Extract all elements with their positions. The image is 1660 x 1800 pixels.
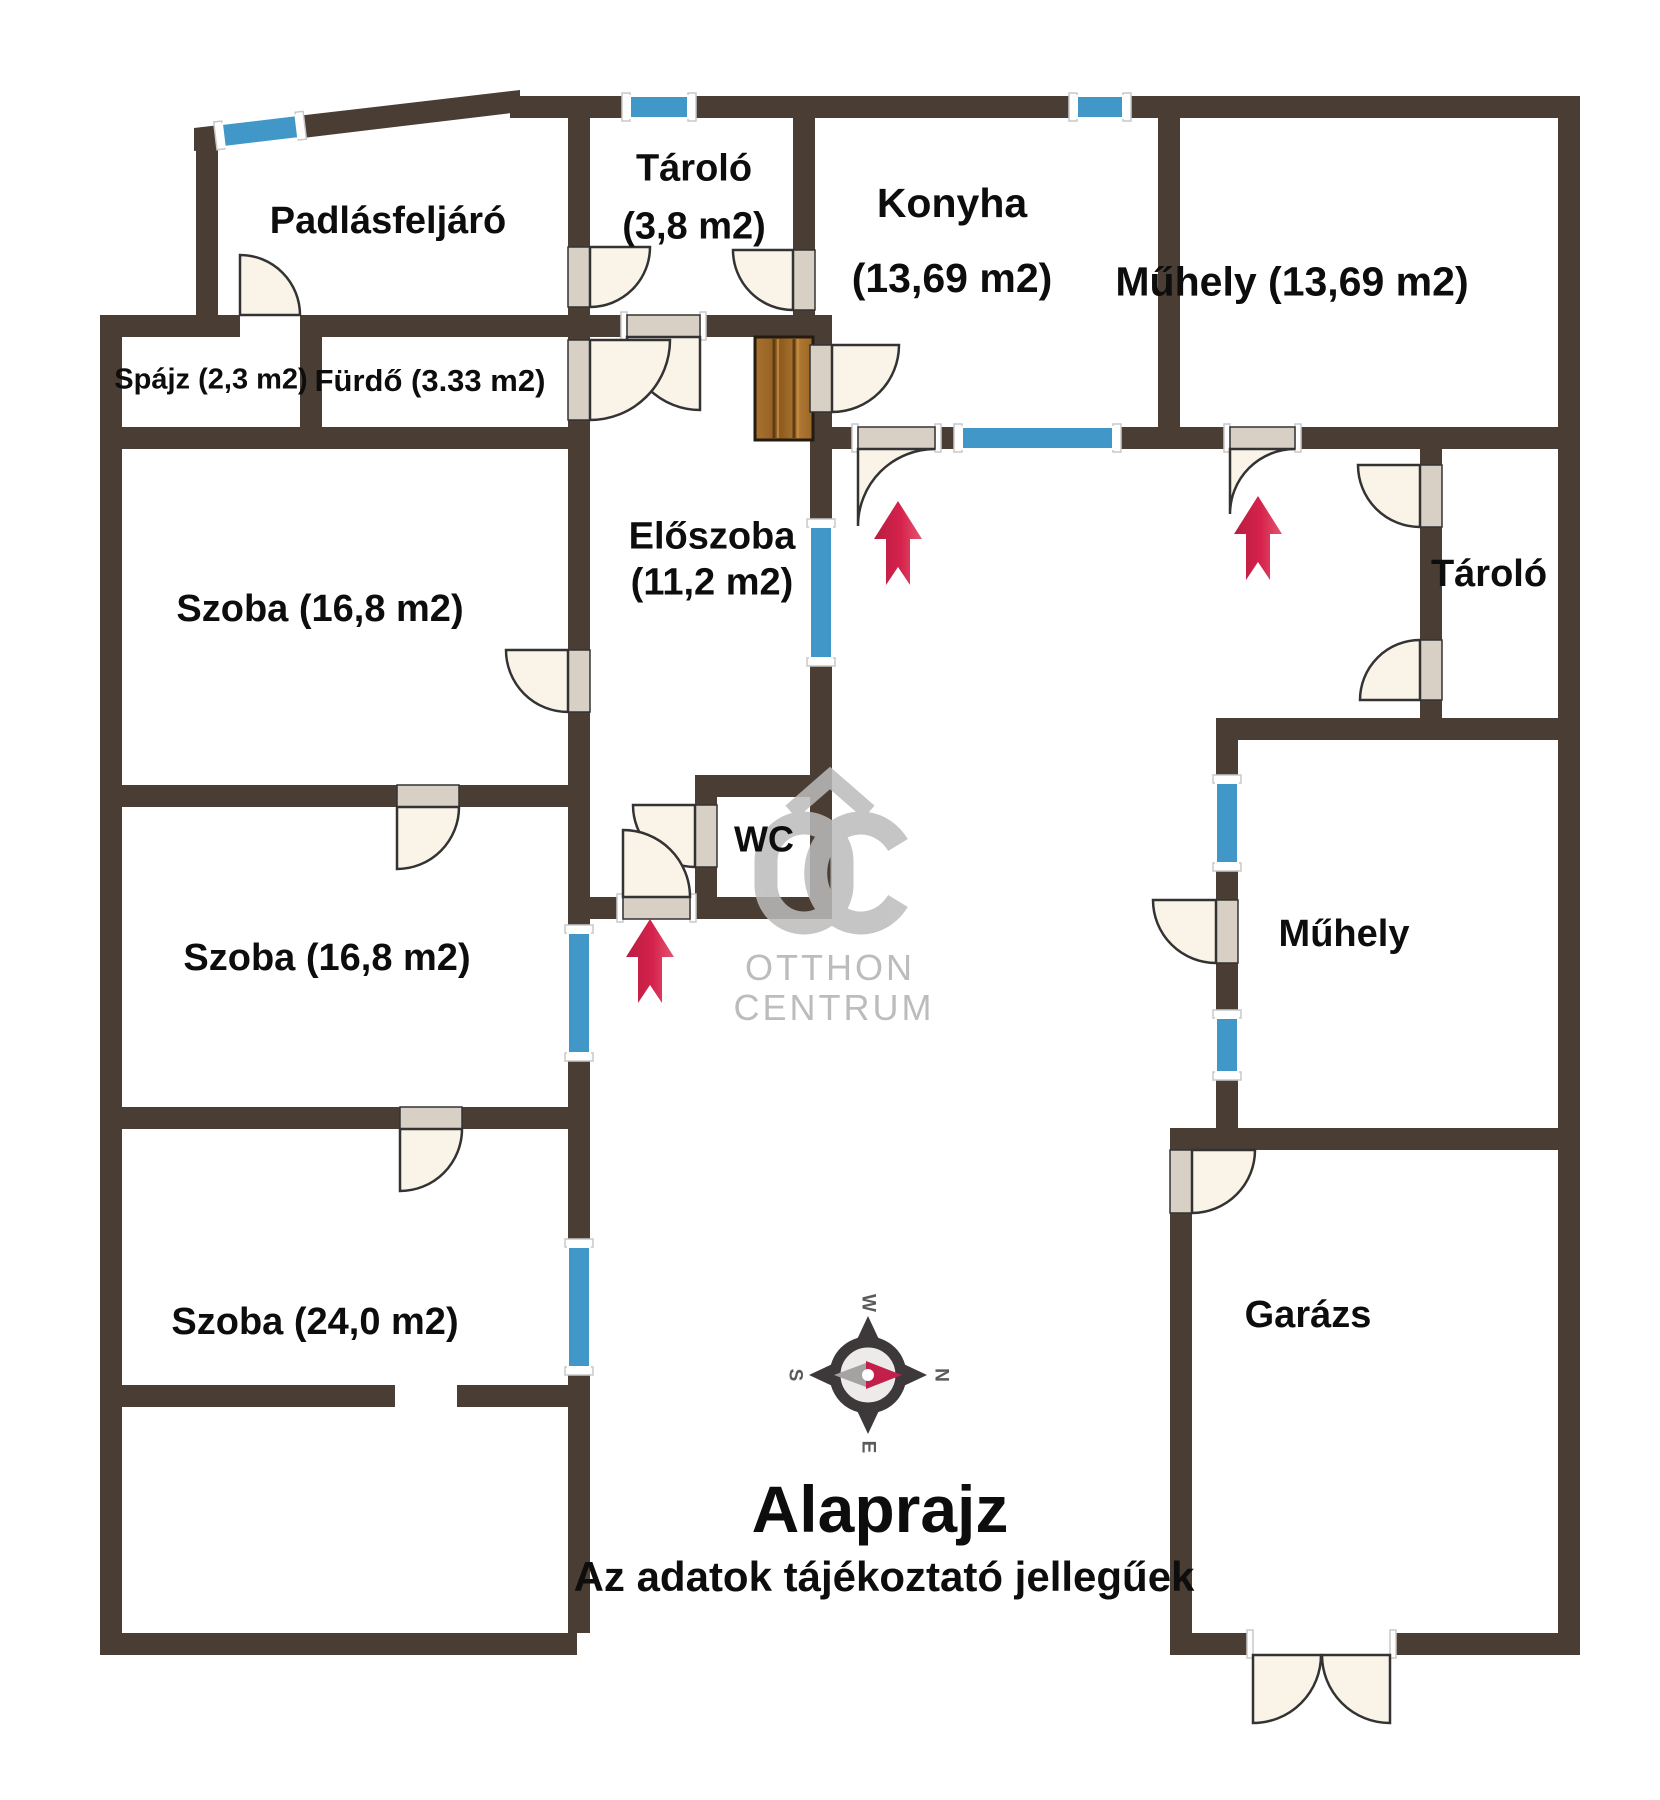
door-icon [568,247,650,307]
door-icon [506,650,590,712]
wall-segment [695,797,717,805]
wall-segment [1295,427,1580,449]
entrance-arrow-icon [1234,496,1282,580]
wall-segment [100,427,590,449]
door-icon [1358,465,1442,527]
window-icon [565,925,593,1061]
wall-segment [568,420,590,650]
room-label-garazs: Garázs [1245,1294,1372,1338]
wall-segment [1216,718,1580,740]
wall-segment [100,1633,577,1655]
compass-label-south: S [785,1369,806,1382]
door-icon [1360,640,1442,700]
room-label-muhely-right: Műhely [1279,913,1410,957]
wall-segment [100,1107,400,1129]
door-icon [397,785,459,869]
wall-segment [1420,700,1442,718]
wall-segment [688,96,1077,118]
watermark-brand-bottom: CENTRUM [734,987,935,1029]
room-label-padlasfeljaro: Padlásfeljáró [270,200,507,244]
compass-label-west: W [858,1294,879,1312]
room-label-wc: WC [734,818,794,859]
door-icon [810,345,899,412]
wall-segment [100,315,122,1655]
window-icon [1213,1010,1241,1080]
room-label-tarolo-top: Tároló (3,8 m2) [622,147,766,248]
compass-label-east: E [858,1441,879,1454]
wall-segment [1170,1128,1192,1150]
room-label-konyha: Konyha (13,69 m2) [852,180,1053,302]
window-icon [565,1239,593,1375]
plan-title: Alaprajz [752,1471,1009,1547]
wall-segment [1420,449,1442,465]
entrance-arrow-icon [874,501,922,585]
plan-disclaimer: Az adatok tájékoztató jellegűek [574,1553,1195,1601]
wall-segment [568,118,590,247]
door-icon [240,255,300,315]
door-icon [400,1107,462,1191]
room-label-eloszoba: Előszoba (11,2 m2) [629,515,796,604]
wall-segment [1558,96,1580,1655]
window-icon [1069,93,1131,121]
attic-stairs-icon [755,337,813,440]
wall-segment [196,132,218,337]
compass-icon: W N E S [785,1294,952,1453]
room-label-szoba2: Szoba (16,8 m2) [183,937,470,981]
garage-door-icon [1247,1630,1396,1723]
door-icon [568,340,670,420]
door-icon [1170,1150,1255,1213]
wall-segment [1123,96,1580,118]
wall-segment [695,867,717,919]
window-icon [622,93,696,121]
window-icon [214,111,307,149]
wall-segment [100,1385,395,1407]
wall-segment [1390,1633,1580,1655]
watermark-brand-top: OTTHON [745,947,915,989]
wall-segment [1216,1072,1238,1150]
room-label-furdo: Fürdő (3.33 m2) [315,363,546,399]
compass-label-north: N [931,1368,952,1382]
room-label-muhely-top: Műhely (13,69 m2) [1115,258,1468,305]
room-label-szoba3: Szoba (24,0 m2) [171,1301,458,1345]
door-icon [1224,424,1301,514]
wall-segment [568,1053,590,1247]
floorplan-page: W N E S Padlásfeljáró Spájz (2,3 m2) Für… [0,0,1660,1800]
wall-segment [100,785,397,807]
room-label-spajz: Spájz (2,3 m2) [114,363,307,396]
door-icon [1153,900,1238,963]
window-icon [954,424,1121,452]
wall-segment [1180,427,1230,449]
door-icon [733,250,815,310]
wall-segment [568,307,590,340]
window-icon [807,519,835,666]
wall-segment [793,118,815,250]
wall-segment [510,96,630,118]
entrance-arrow-icon [626,919,674,1003]
room-label-szoba1: Szoba (16,8 m2) [176,588,463,632]
window-icon [1213,775,1241,871]
room-label-tarolo-right: Tároló [1431,553,1547,597]
wall-segment [568,712,590,933]
wall-segment [300,315,568,337]
